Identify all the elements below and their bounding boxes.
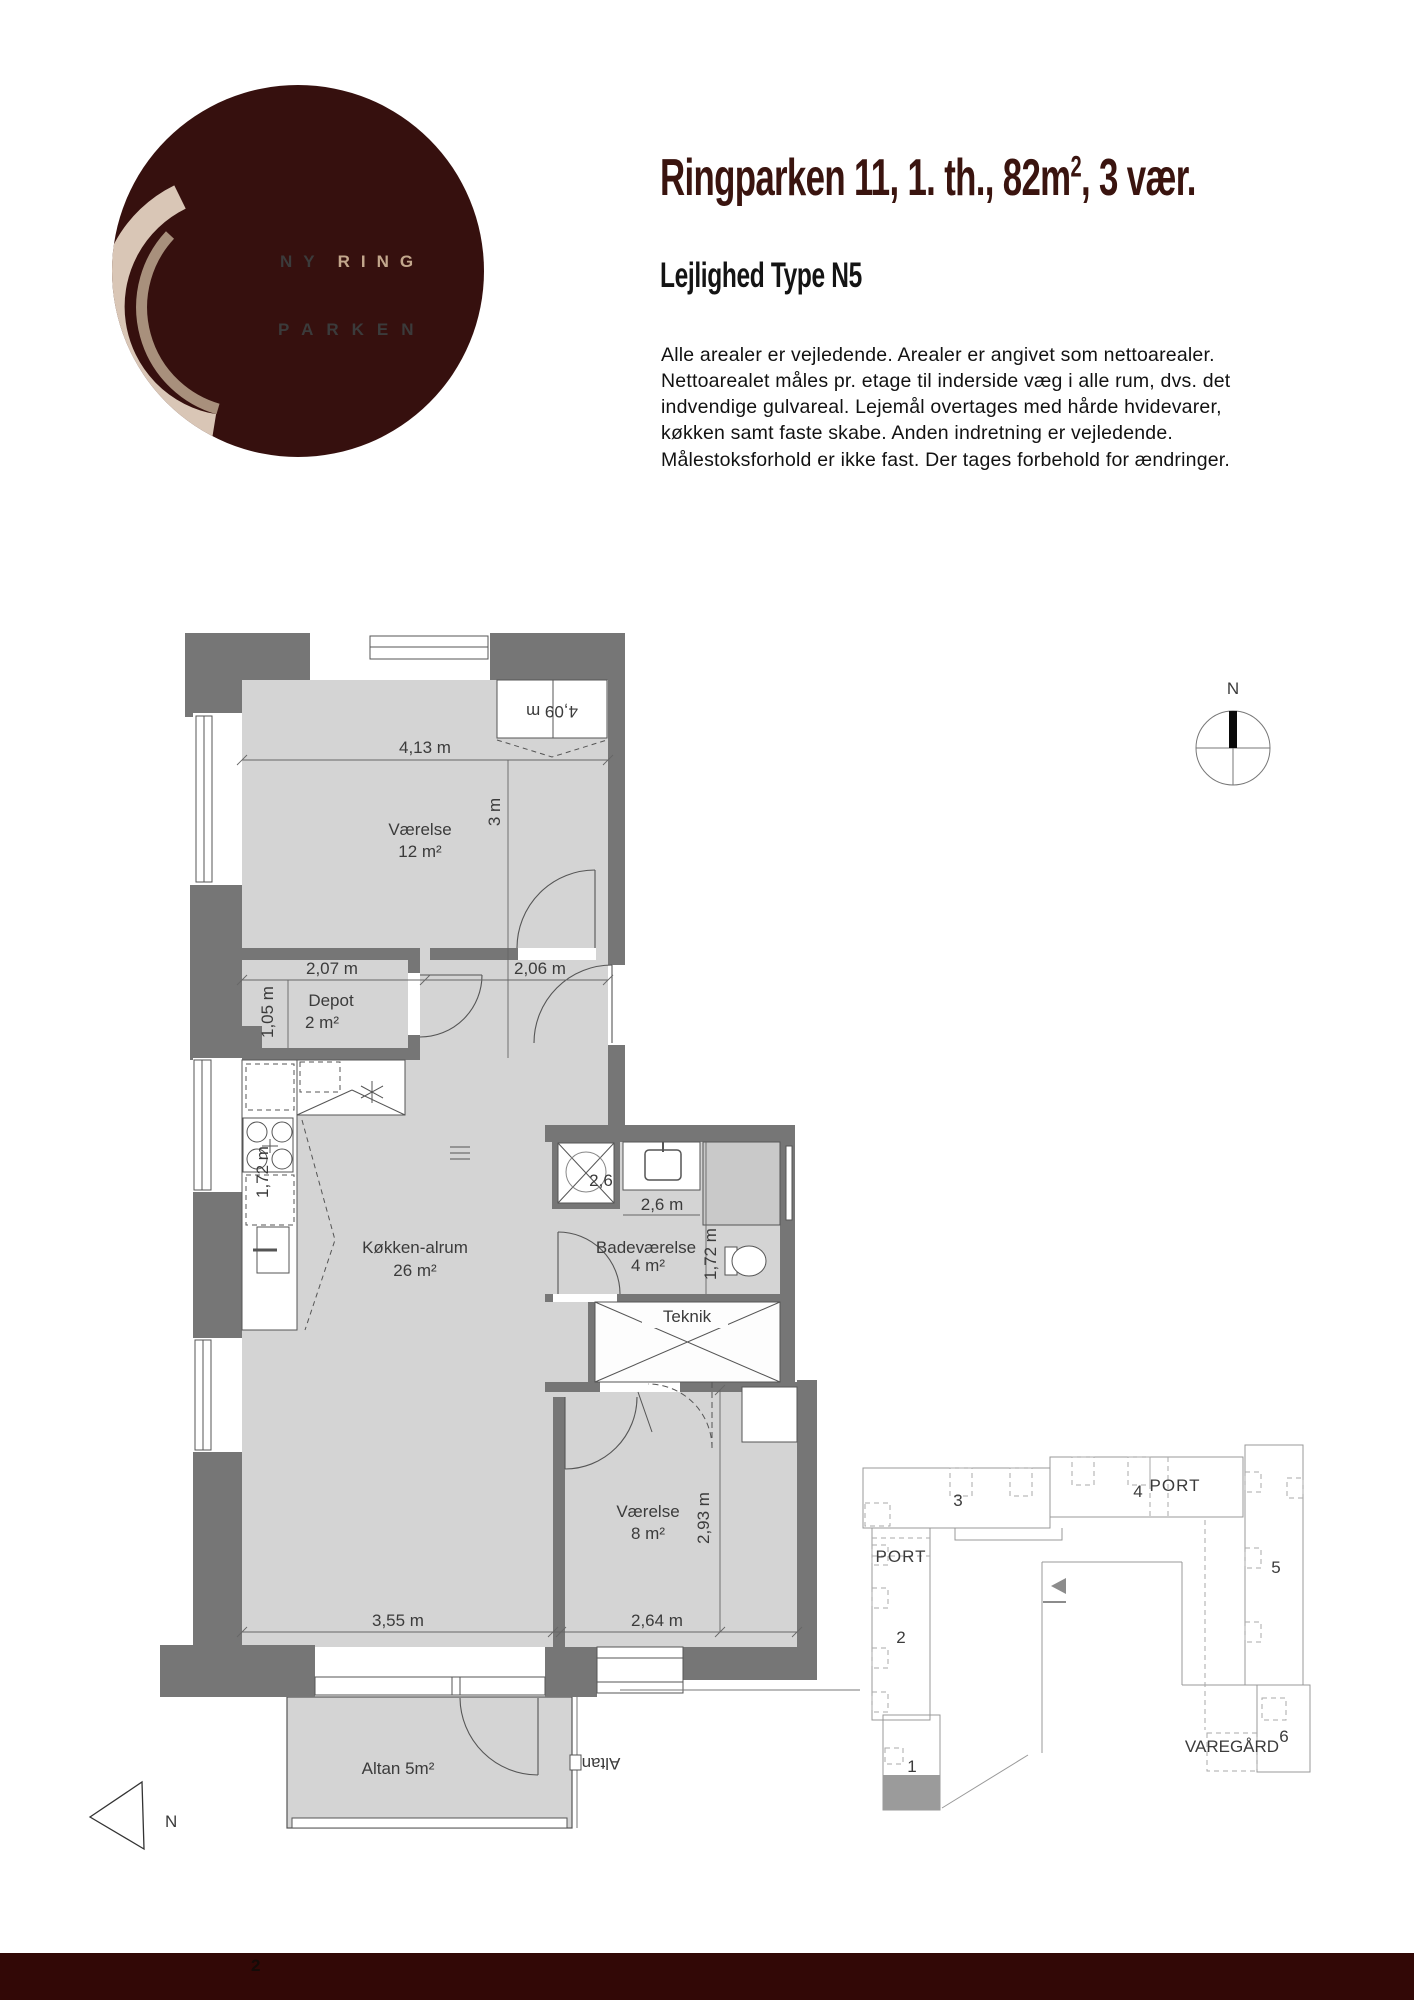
room-bad-name: Badeværelse — [596, 1238, 696, 1257]
room-vaerelse8-name: Værelse — [616, 1502, 679, 1521]
site-plan: 3 4 5 6 2 1 PORT PORT VAREGÅRD — [850, 1425, 1410, 1820]
footer-bar: 2 — [0, 1953, 1414, 2000]
title-superscript: 2 — [1071, 151, 1082, 184]
building-1-label: 1 — [907, 1757, 916, 1776]
dim-bad-width: 2,6 m — [641, 1195, 684, 1214]
room-depot-name: Depot — [308, 991, 354, 1010]
dim-top-width: 4,13 m — [399, 738, 451, 757]
room-vaerelse12-area: 12 m² — [398, 842, 442, 861]
room-teknik-name: Teknik — [663, 1307, 712, 1326]
north-arrow: N — [55, 1765, 205, 1865]
building-3-label: 3 — [953, 1491, 962, 1510]
dim-kitchen-run: 1,72 m — [253, 1146, 272, 1198]
port-label-left: PORT — [876, 1547, 927, 1566]
dim-shower: 2,6 — [589, 1171, 613, 1190]
compass-north-needle — [1229, 711, 1237, 748]
dim-room2-width: 2,64 m — [631, 1611, 683, 1630]
brochure-page: NYRING PARKEN Ringparken 11, 1. th., 82m… — [0, 0, 1414, 2000]
dim-bad-height: 1,72 m — [701, 1228, 720, 1280]
dim-depot-width: 2,07 m — [306, 959, 358, 978]
room-vaerelse8-area: 8 m² — [631, 1524, 665, 1543]
building-5-label: 5 — [1271, 1558, 1280, 1577]
disclaimer-paragraph: Alle arealer er vejledende. Arealer er a… — [661, 342, 1261, 473]
logo-line1: NYRING — [280, 252, 424, 271]
title-prefix: Ringparken 11, 1. th., 82m — [660, 149, 1071, 207]
neighbor-altan-label: Altan — [582, 1754, 621, 1773]
compass-north-label: N — [1227, 679, 1239, 698]
varegard-label: VAREGÅRD — [1185, 1737, 1279, 1756]
page-number: 2 — [251, 1956, 260, 1976]
dim-living-width: 3,55 m — [372, 1611, 424, 1630]
dim-room2-height: 2,93 m — [694, 1492, 713, 1544]
dim-room1-height: 3 m — [485, 798, 504, 826]
north-arrow-label: N — [165, 1812, 177, 1831]
siteplan-arrow-icon — [1051, 1578, 1066, 1594]
room-bad-area: 4 m² — [631, 1256, 665, 1275]
room-vaerelse12-name: Værelse — [388, 820, 451, 839]
dim-closet: 4,09 m — [526, 702, 578, 721]
compass-rose: N — [1183, 662, 1287, 796]
dim-depot-height: 1,05 m — [258, 986, 277, 1038]
building-2-label: 2 — [896, 1628, 905, 1647]
apartment-type-subtitle: Lejlighed Type N5 — [660, 256, 862, 296]
room-altan-label: Altan 5m² — [362, 1759, 435, 1778]
room-koekken-area: 26 m² — [393, 1261, 437, 1280]
room-depot-area: 2 m² — [305, 1013, 339, 1032]
room-koekken-name: Køkken-alrum — [362, 1238, 468, 1257]
building-6-label: 6 — [1279, 1727, 1288, 1746]
north-triangle-icon — [90, 1782, 144, 1849]
siteplan-dashed-details — [865, 1457, 1303, 1771]
title-suffix: , 3 vær. — [1081, 149, 1196, 207]
siteplan-labels: 3 4 5 6 2 1 PORT PORT VAREGÅRD — [876, 1476, 1289, 1776]
floor-plan: Værelse 12 m² Depot 2 m² Køkken-alrum 26… — [140, 560, 880, 1850]
port-label-top: PORT — [1150, 1476, 1201, 1495]
page-title: Ringparken 11, 1. th., 82m2, 3 vær. — [660, 148, 1196, 208]
dim-hall-width: 2,06 m — [514, 959, 566, 978]
building-4-label: 4 — [1133, 1482, 1142, 1501]
logo-line2: PARKEN — [278, 320, 427, 339]
highlighted-unit-marker — [883, 1775, 940, 1810]
ny-ringparken-logo: NYRING PARKEN — [112, 85, 484, 457]
